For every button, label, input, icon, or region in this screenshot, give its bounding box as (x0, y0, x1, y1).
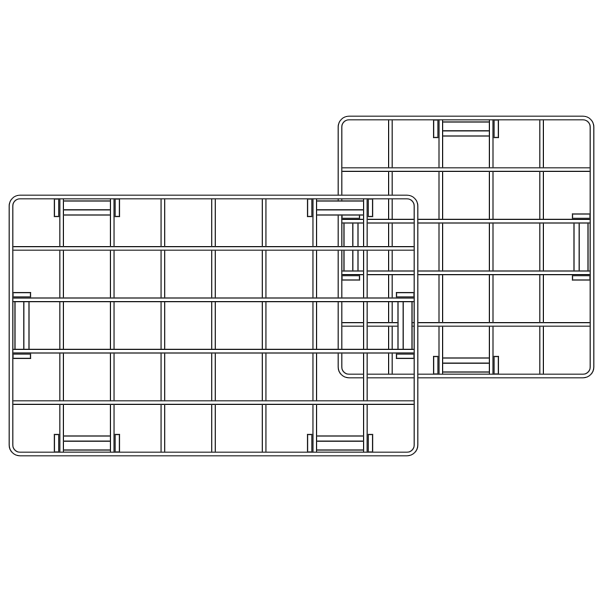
clip-channel (441, 122, 491, 136)
clip-tab-left (308, 199, 312, 217)
wire-grid-illustration (0, 0, 600, 600)
clip-tab-right (115, 199, 119, 217)
clip-tab-top (573, 214, 591, 218)
clip-channel (315, 201, 366, 215)
clip-channel (441, 358, 491, 372)
clip-tab-top (397, 293, 415, 297)
clip-tab-bottom (342, 276, 360, 280)
clip-tab-bottom (397, 354, 415, 358)
clip-channel (398, 300, 412, 351)
front-panel-top-edge-clip (54, 199, 119, 217)
front-panel-vertical-wires-core (62, 197, 366, 454)
clip-tab-top (13, 293, 31, 297)
front-panel-top-edge-clip (308, 199, 373, 217)
clip-tab-right (368, 435, 372, 453)
clip-tab-left (434, 120, 438, 138)
clip-tab-right (368, 199, 372, 217)
clip-tab-bottom (573, 276, 591, 280)
clip-tab-right (494, 357, 498, 375)
clip-tab-left (54, 199, 58, 217)
clip-channel (15, 300, 29, 351)
clip-channel (315, 436, 366, 450)
front-panel-bottom-edge-clip (54, 435, 119, 453)
clip-tab-left (308, 435, 312, 453)
back-panel-bottom-edge-clip (434, 357, 499, 375)
front-panel-bottom-edge-clip (308, 435, 373, 453)
clip-channel (574, 221, 588, 273)
clip-channel (62, 436, 113, 450)
front-panel-left-edge-clip (13, 293, 31, 359)
back-panel-right-edge-clip (573, 214, 591, 280)
clip-tab-left (54, 435, 58, 453)
front-panel-right-edge-clip (397, 293, 415, 359)
clip-tab-right (115, 435, 119, 453)
clip-tab-right (494, 120, 498, 138)
clip-tab-left (434, 357, 438, 375)
back-panel-top-edge-clip (434, 120, 499, 138)
clip-tab-bottom (13, 354, 31, 358)
clip-channel (62, 201, 113, 215)
illustration-stage (0, 0, 600, 600)
